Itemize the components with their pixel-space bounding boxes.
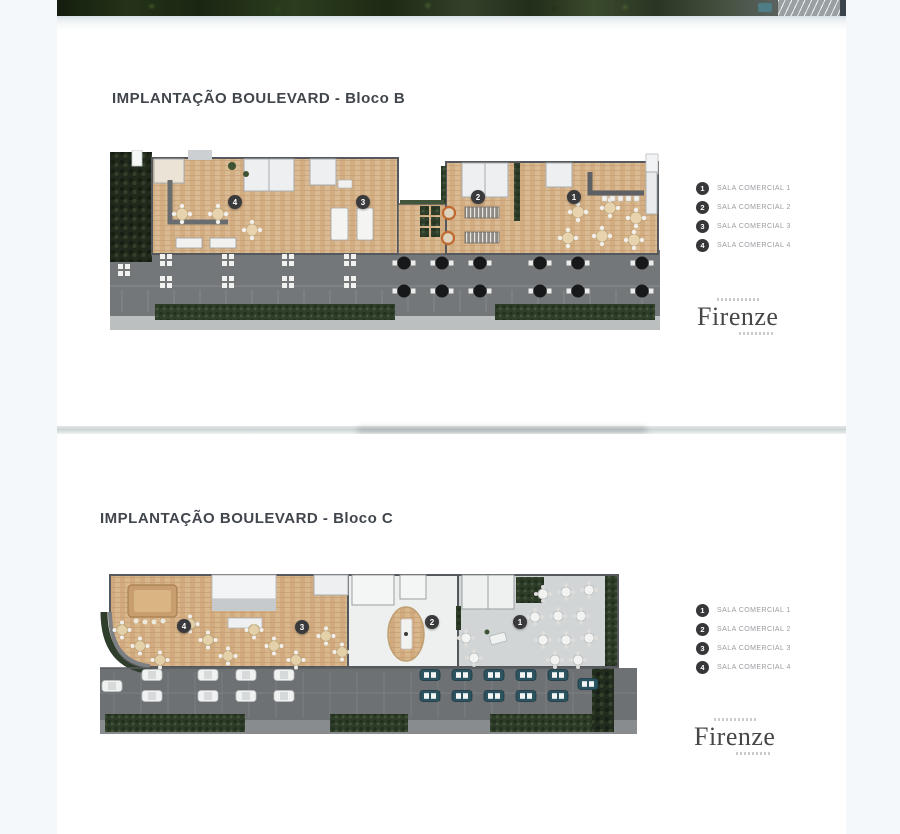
- hedge-row: [495, 304, 655, 320]
- hero-pool: [758, 3, 772, 12]
- legend-number-badge: 4: [696, 661, 709, 674]
- legend-item: 3 SALA COMERCIAL 3: [696, 642, 791, 655]
- plan-marker-sala-3: 3: [356, 195, 370, 209]
- hero-rooftop: [778, 0, 840, 16]
- legend-label: SALA COMERCIAL 1: [717, 185, 791, 192]
- floor-plan-bloco-b[interactable]: 4 3 2 1: [110, 150, 660, 330]
- section-card-bloco-b: IMPLANTAÇÃO BOULEVARD - Bloco B: [57, 30, 846, 426]
- logo-tagline-bottom: [739, 332, 775, 335]
- legend-number-badge: 3: [696, 220, 709, 233]
- logo-wordmark: Firenze: [697, 304, 783, 330]
- legend-number-badge: 3: [696, 642, 709, 655]
- legend-label: SALA COMERCIAL 1: [717, 607, 791, 614]
- legend-label: SALA COMERCIAL 4: [717, 664, 791, 671]
- legend-item: 4 SALA COMERCIAL 4: [696, 239, 791, 252]
- section-title-bloco-c: IMPLANTAÇÃO BOULEVARD - Bloco C: [100, 510, 393, 527]
- tree-column: [592, 668, 614, 732]
- plan-marker-sala-4: 4: [177, 619, 191, 633]
- divider-smudge: [357, 427, 647, 433]
- legend-label: SALA COMERCIAL 2: [717, 204, 791, 211]
- legend-bloco-b: 1 SALA COMERCIAL 1 2 SALA COMERCIAL 2 3 …: [696, 182, 791, 258]
- floor-plan-bloco-c[interactable]: 4 3 2 1: [100, 572, 637, 734]
- plan-marker-sala-4: 4: [228, 195, 242, 209]
- card-divider: [57, 426, 846, 434]
- logo-tagline-top: [714, 718, 756, 721]
- floor-plan-svg-bloco-b: [110, 150, 660, 330]
- logo-tagline-bottom: [736, 752, 772, 755]
- firenze-logo: Firenze: [697, 298, 783, 335]
- legend-label: SALA COMERCIAL 4: [717, 242, 791, 249]
- floor-plan-svg-bloco-c: [100, 572, 637, 734]
- legend-label: SALA COMERCIAL 3: [717, 645, 791, 652]
- plan-marker-sala-2: 2: [471, 190, 485, 204]
- legend-number-badge: 1: [696, 604, 709, 617]
- hedge-row: [330, 714, 408, 732]
- hero-foliage: [57, 0, 846, 16]
- hero-photo-strip: [57, 0, 846, 16]
- legend-label: SALA COMERCIAL 3: [717, 223, 791, 230]
- hedge-row: [155, 304, 395, 320]
- plan-marker-sala-2: 2: [425, 615, 439, 629]
- logo-wordmark: Firenze: [694, 724, 780, 750]
- legend-item: 2 SALA COMERCIAL 2: [696, 201, 791, 214]
- firenze-logo: Firenze: [694, 718, 780, 755]
- plan-marker-sala-1: 1: [513, 615, 527, 629]
- legend-number-badge: 4: [696, 239, 709, 252]
- plan-marker-sala-1: 1: [567, 190, 581, 204]
- page: IMPLANTAÇÃO BOULEVARD - Bloco B: [0, 0, 900, 834]
- legend-item: 1 SALA COMERCIAL 1: [696, 182, 791, 195]
- trees-left: [110, 152, 152, 262]
- legend-number-badge: 2: [696, 623, 709, 636]
- plan-marker-sala-3: 3: [295, 620, 309, 634]
- legend-label: SALA COMERCIAL 2: [717, 626, 791, 633]
- legend-item: 1 SALA COMERCIAL 1: [696, 604, 791, 617]
- logo-tagline-top: [717, 298, 759, 301]
- legend-item: 2 SALA COMERCIAL 2: [696, 623, 791, 636]
- legend-number-badge: 1: [696, 182, 709, 195]
- legend-number-badge: 2: [696, 201, 709, 214]
- building-bloco-b: [132, 150, 658, 254]
- section-card-bloco-c: IMPLANTAÇÃO BOULEVARD - Bloco C: [57, 434, 846, 834]
- legend-item: 3 SALA COMERCIAL 3: [696, 220, 791, 233]
- hedge-row: [105, 714, 245, 732]
- legend-bloco-c: 1 SALA COMERCIAL 1 2 SALA COMERCIAL 2 3 …: [696, 604, 791, 680]
- legend-item: 4 SALA COMERCIAL 4: [696, 661, 791, 674]
- hedge-row: [490, 714, 600, 732]
- section-title-bloco-b: IMPLANTAÇÃO BOULEVARD - Bloco B: [112, 90, 405, 107]
- hero-shadow: [57, 16, 846, 30]
